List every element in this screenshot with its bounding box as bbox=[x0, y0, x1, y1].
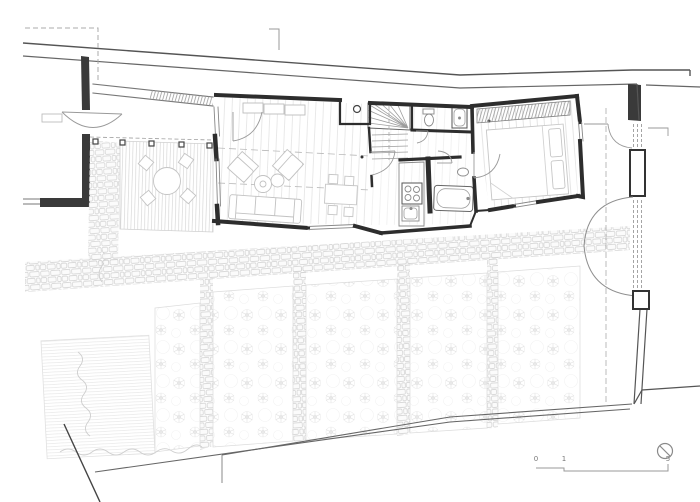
street-walls bbox=[23, 28, 700, 88]
sofa bbox=[228, 195, 301, 224]
west-wall-ties bbox=[23, 199, 40, 204]
side-table bbox=[271, 174, 284, 187]
left-entrance bbox=[23, 56, 122, 264]
tub-faucet bbox=[467, 197, 469, 199]
street-outer-line bbox=[23, 43, 690, 76]
pergola-dashed-line bbox=[90, 137, 213, 140]
lined-plot bbox=[41, 335, 155, 458]
washbasin bbox=[458, 168, 469, 176]
beam-marker-dot bbox=[361, 156, 364, 159]
toilet-tank bbox=[423, 109, 434, 114]
garden bbox=[25, 226, 700, 502]
entrance-threshold bbox=[42, 114, 62, 122]
burner bbox=[414, 187, 420, 193]
street-inner-line bbox=[23, 56, 700, 88]
bed bbox=[486, 124, 568, 200]
outdoor-table bbox=[154, 168, 181, 195]
scale-bar-line bbox=[536, 464, 668, 471]
passage-bottom-pier bbox=[633, 291, 649, 309]
scale-bar: 0 1 5 bbox=[534, 455, 670, 471]
neighbor-bracket-mark bbox=[648, 128, 668, 136]
passage-mid-pier bbox=[630, 150, 645, 196]
burner bbox=[405, 195, 411, 201]
chimney-column bbox=[354, 106, 361, 113]
floor-plan-drawing: 0 1 5 bbox=[0, 0, 700, 502]
garden-bed bbox=[410, 273, 487, 433]
burner bbox=[405, 186, 411, 192]
boundary-wall-lower bbox=[40, 134, 90, 207]
faucet bbox=[410, 207, 412, 209]
garden-bed bbox=[155, 303, 200, 452]
survey-bracket-mark bbox=[269, 29, 279, 50]
scale-label-1: 1 bbox=[562, 455, 566, 463]
canopy-hatched-strip bbox=[150, 90, 213, 106]
garden-bed bbox=[213, 286, 293, 447]
entrance-gate-arc bbox=[42, 112, 122, 128]
toilet bbox=[425, 114, 434, 126]
sideboard bbox=[243, 103, 305, 115]
garden-bed bbox=[306, 279, 397, 440]
boundary-wall-upper bbox=[81, 56, 90, 110]
scale-label-0: 0 bbox=[534, 455, 538, 463]
garden-bed bbox=[498, 266, 580, 424]
floor-plan-canvas: 0 1 5 bbox=[0, 0, 700, 502]
entry-stone-path bbox=[88, 140, 120, 264]
small-gate-arc bbox=[584, 124, 632, 148]
stove bbox=[402, 183, 422, 204]
garden-beds bbox=[155, 266, 580, 452]
burner bbox=[414, 195, 420, 201]
bedroom bbox=[477, 101, 570, 200]
gate-track-dashes bbox=[634, 124, 642, 288]
